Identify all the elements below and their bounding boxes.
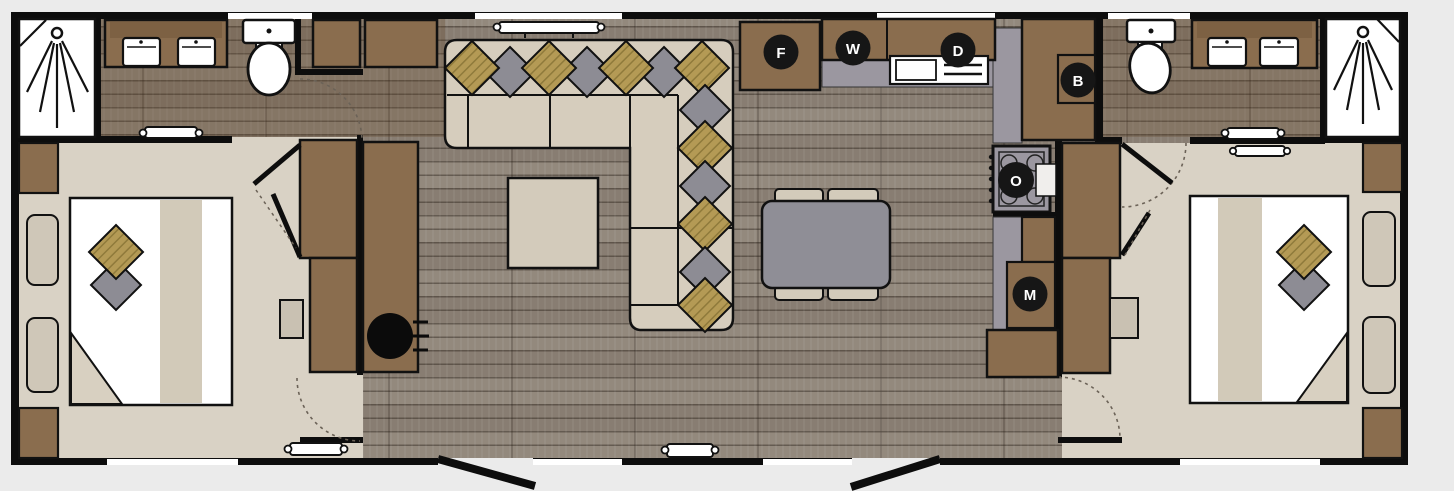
- wardrobe-doors: [1122, 210, 1150, 255]
- double-bed: [1190, 196, 1348, 403]
- corner-cupboard: [1363, 143, 1402, 192]
- radiator: [662, 444, 719, 457]
- appliance-marker-f: F: [764, 35, 799, 70]
- overhead-cupboard: [365, 20, 437, 67]
- appliance-marker-d-label: D: [953, 43, 964, 60]
- appliance-marker-f-label: F: [776, 45, 785, 62]
- window-lounge-bottom-a: [533, 459, 622, 465]
- radiator: [285, 443, 348, 455]
- double-bed: [70, 198, 232, 405]
- radiator: [1230, 146, 1290, 156]
- corner-cupboard: [19, 143, 58, 193]
- wardrobe-doors: [254, 145, 300, 257]
- bedside-table: [1363, 212, 1395, 286]
- toilet-icon: [243, 20, 295, 95]
- wardrobe: [1062, 143, 1120, 258]
- bedside-table: [1363, 317, 1395, 393]
- appliance-marker-b: B: [1061, 63, 1096, 98]
- window-right-bedroom: [1180, 459, 1320, 465]
- entrance-door-right-leaf: [851, 459, 940, 487]
- base-cabinet: [1022, 217, 1055, 262]
- hob-knob: [989, 188, 993, 192]
- right-bathroom: [1125, 19, 1400, 139]
- kitchen-sink-icon: [890, 56, 988, 84]
- appliance-marker-o: O: [998, 162, 1034, 198]
- stool-icon: [367, 313, 429, 359]
- window-lounge-bottom-b: [763, 459, 852, 465]
- corner-cupboard: [1363, 408, 1402, 458]
- wall-toilet-nook-h: [295, 69, 363, 75]
- lounge: [363, 22, 733, 457]
- wall-stub-right: [1058, 437, 1122, 443]
- wall-top: [11, 12, 1408, 19]
- desk-shelf: [1110, 298, 1138, 338]
- left-ensuite: [19, 19, 437, 138]
- desk-shelf: [280, 300, 303, 338]
- window-lounge-top: [475, 13, 622, 19]
- bed-runner: [160, 200, 202, 403]
- extractor-block: [1036, 164, 1056, 196]
- appliance-marker-w-label: W: [846, 41, 861, 58]
- appliance-marker-o-label: O: [1010, 173, 1022, 190]
- bathroom-door-leaf: [1122, 144, 1172, 183]
- vanity-shelf: [1197, 22, 1312, 38]
- appliance-marker-b-label: B: [1073, 73, 1084, 90]
- floorplan-canvas: F W D B O M: [0, 0, 1454, 491]
- coffee-table: [508, 178, 598, 268]
- worktop-return: [993, 28, 1022, 143]
- radiator: [1222, 128, 1285, 139]
- bedside-table: [27, 318, 58, 392]
- appliance-marker-d: D: [941, 33, 976, 68]
- floorplan-drawing: F W D B O M: [0, 0, 1454, 491]
- end-cabinet: [987, 330, 1058, 377]
- sink-icon: [178, 38, 215, 66]
- hob-knob: [989, 177, 993, 181]
- radiator: [494, 22, 605, 38]
- hob-knob: [989, 166, 993, 170]
- radiator: [140, 127, 203, 138]
- ensuite-door-swing: [300, 79, 362, 140]
- entrance-door-left-leaf: [438, 459, 535, 486]
- hob-knob: [989, 199, 993, 203]
- window-bathroom: [1108, 13, 1190, 19]
- dining-table: [762, 201, 890, 288]
- bedside-table: [27, 215, 58, 285]
- dresser-unit: [1062, 258, 1110, 373]
- overhead-cupboard: [313, 20, 360, 67]
- left-bedroom-door-swing: [297, 378, 360, 441]
- right-bedroom-door-swing: [1058, 377, 1120, 439]
- corner-cupboard: [19, 408, 58, 458]
- window-ensuite: [228, 13, 312, 19]
- sink-icon: [1208, 38, 1246, 66]
- toilet-icon: [1125, 20, 1175, 97]
- appliance-marker-w: W: [836, 31, 871, 66]
- appliance-marker-m-label: M: [1024, 287, 1037, 304]
- dining-area: [762, 189, 890, 300]
- bed-runner: [1218, 198, 1262, 401]
- appliance-marker-m: M: [1013, 277, 1048, 312]
- left-bedroom: [19, 140, 357, 458]
- sink-icon: [123, 38, 160, 66]
- window-left-bedroom: [107, 459, 238, 465]
- hob-knob: [989, 155, 993, 159]
- wall-bottom-right: [940, 458, 1408, 465]
- dresser-unit: [310, 258, 357, 372]
- wardrobe: [300, 140, 357, 258]
- vanity-shelf: [110, 22, 222, 38]
- right-bedroom: [1062, 143, 1402, 458]
- sink-icon: [1260, 38, 1298, 66]
